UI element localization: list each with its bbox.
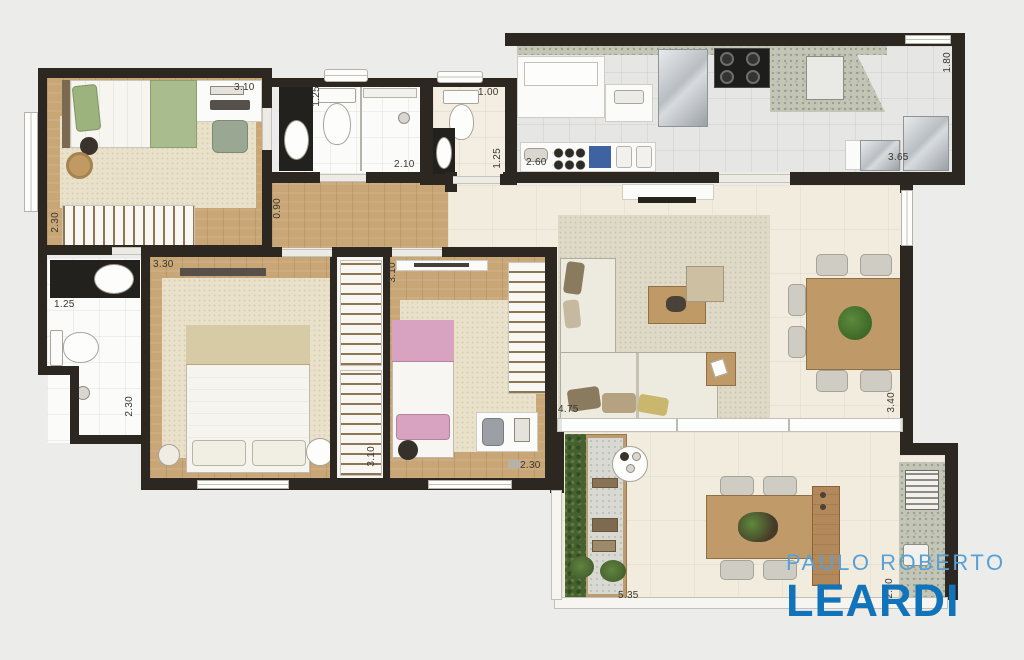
round-table-plate	[620, 452, 629, 461]
terrace-table-decor	[738, 512, 778, 542]
dim-bath2-width: 1.00	[478, 87, 499, 98]
wall	[70, 366, 79, 444]
dim-bedroom2-depth: 3.10	[387, 262, 398, 283]
coffee-table-decor	[666, 296, 686, 312]
bedroom2-pink-blanket	[392, 320, 454, 362]
master-window	[197, 480, 289, 489]
dining-chair	[788, 284, 806, 316]
bed1-green-blanket	[150, 80, 197, 148]
sofa-pillow-taupe	[602, 393, 636, 413]
bedroom2-stool	[398, 440, 418, 460]
dim-kitchen-depth: 1.80	[942, 52, 953, 73]
cooktop-burner	[720, 70, 734, 84]
garden-bush	[570, 556, 594, 578]
bath1-toilet-tank	[318, 88, 356, 103]
wall	[38, 68, 47, 375]
dim-terrace-width: 5.35	[618, 590, 639, 601]
wall	[366, 172, 420, 183]
dim-bedroom1-width: 3.10	[234, 82, 255, 93]
terrace-railing-left	[551, 490, 562, 600]
dining-chair	[816, 370, 848, 392]
garden-stone	[592, 540, 616, 552]
master-wall-shelf	[180, 268, 266, 276]
wall	[262, 150, 272, 255]
round-table-plate	[626, 464, 635, 473]
hall-floor	[272, 182, 448, 248]
master-bed-duvet-folds	[188, 366, 308, 438]
kitchen-window	[905, 35, 951, 44]
bedroom1-round-rug	[66, 152, 93, 179]
wall	[505, 33, 965, 46]
bedroom2-shelf-item	[414, 263, 469, 267]
wall	[383, 257, 390, 478]
master-bed-blanket	[186, 325, 310, 365]
garden-stepping-stone	[592, 478, 618, 488]
bath3-toilet-tank	[50, 330, 63, 366]
living-terrace-glass-door	[557, 418, 903, 432]
service-rack	[552, 146, 586, 170]
bath1-drain	[398, 112, 410, 124]
bedroom2-chair	[482, 418, 504, 446]
washing-machine	[589, 146, 611, 168]
dim-bath1-length: 2.10	[394, 159, 415, 170]
laundry-tub	[636, 146, 652, 168]
dim-bath3-width: 1.25	[54, 299, 75, 310]
master-closet	[340, 260, 382, 366]
wall	[790, 172, 965, 185]
bedroom2-window	[428, 480, 512, 489]
master-pillow	[192, 440, 246, 466]
dim-bedroom1-depth: 2.30	[50, 212, 61, 233]
bath3-toilet-bowl	[63, 332, 99, 363]
bath2-toilet-tank	[443, 90, 479, 104]
kitchen-refrigerator	[658, 49, 708, 127]
granite-sink	[806, 56, 844, 100]
wall	[272, 172, 320, 183]
master-pouf	[158, 444, 180, 466]
wall	[420, 78, 433, 185]
dim-bath2-depth: 1.25	[492, 148, 503, 169]
bath3-door	[112, 247, 141, 255]
wall	[38, 68, 272, 78]
kitchen-sink	[614, 90, 644, 104]
dining-table-plant	[838, 306, 872, 340]
brand-name-bottom: LEARDI	[786, 578, 1006, 623]
bedroom1-wardrobe	[62, 205, 195, 246]
bath1-sink	[284, 120, 309, 160]
dim-master-width: 3.30	[153, 259, 174, 270]
bath3-sink	[94, 264, 134, 294]
bath1-window	[324, 69, 368, 82]
wall	[70, 435, 150, 444]
bedroom2-door	[392, 249, 442, 257]
dim-bath3-depth: 2.30	[124, 396, 135, 417]
garden-bench	[592, 518, 618, 532]
bath1-toilet-bowl	[323, 103, 351, 145]
wall	[952, 33, 965, 185]
dim-living-width: 4.75	[558, 404, 579, 415]
master-door	[282, 249, 332, 257]
wall	[505, 78, 517, 185]
dim-bedroom2-width: 2.30	[520, 460, 541, 471]
bath1-shower-glass	[360, 87, 362, 171]
bedroom2-pink-pillow	[396, 414, 450, 440]
kitchen-passage	[719, 174, 790, 183]
dim-living-depth: 3.40	[886, 392, 897, 413]
bath2-sink	[436, 137, 452, 169]
bath1-door	[320, 174, 366, 182]
terrace-chair	[763, 476, 797, 496]
cooktop-burner	[746, 70, 760, 84]
wall	[442, 247, 557, 257]
bath1-shower-shelf	[363, 88, 417, 98]
bedroom1-chair	[212, 120, 248, 153]
sofa-pillow-tan	[563, 299, 582, 329]
living-window	[901, 190, 913, 246]
dim-kitchen-right: 3.65	[888, 152, 909, 163]
wall	[141, 255, 150, 490]
tv	[638, 197, 696, 203]
kitchen-cabinet	[524, 62, 598, 86]
wall	[332, 247, 392, 257]
dim-kitchen-left: 2.60	[526, 157, 547, 168]
dining-chair	[860, 370, 892, 392]
brand-logo: PAULO ROBERTO LEARDI	[786, 552, 1006, 623]
bedroom2-wardrobe	[508, 262, 548, 394]
brand-name-top: PAULO ROBERTO	[786, 552, 1006, 574]
terrace-chair	[720, 560, 754, 580]
dim-bath1-entry: 1.25	[311, 86, 322, 107]
bath2-door	[453, 176, 500, 184]
barbecue-grill	[905, 470, 939, 510]
laundry-tub	[616, 146, 632, 168]
dryer	[903, 116, 949, 171]
bedroom1-window	[24, 112, 38, 212]
bath2-window	[437, 71, 483, 83]
master-pillow	[252, 440, 306, 466]
bedroom2-desk-item	[514, 418, 530, 442]
floor-plan: 3.10 2.30 1.25 2.10 1.00 1.25 0.90 2.60 …	[0, 0, 1024, 660]
round-table-plate	[632, 452, 641, 461]
sideboard-knob	[820, 504, 826, 510]
cooktop-burner	[720, 52, 734, 66]
garden-bush	[600, 560, 626, 582]
bed1-headboard	[62, 80, 70, 148]
dining-chair	[816, 254, 848, 276]
wall	[150, 247, 282, 257]
bedroom1-door	[262, 108, 272, 150]
sideboard-knob	[820, 492, 826, 498]
terrace-chair	[720, 476, 754, 496]
dim-hall-width: 0.90	[272, 198, 283, 219]
wall	[330, 257, 337, 478]
desk-keyboard	[210, 100, 250, 110]
bed1-pillow	[72, 84, 102, 132]
side-table	[686, 266, 724, 302]
cooktop-burner	[746, 52, 760, 66]
dining-chair	[788, 326, 806, 358]
dining-chair	[860, 254, 892, 276]
dim-master-depth: 3.10	[366, 446, 377, 467]
wall	[503, 172, 719, 183]
wall	[262, 68, 272, 108]
